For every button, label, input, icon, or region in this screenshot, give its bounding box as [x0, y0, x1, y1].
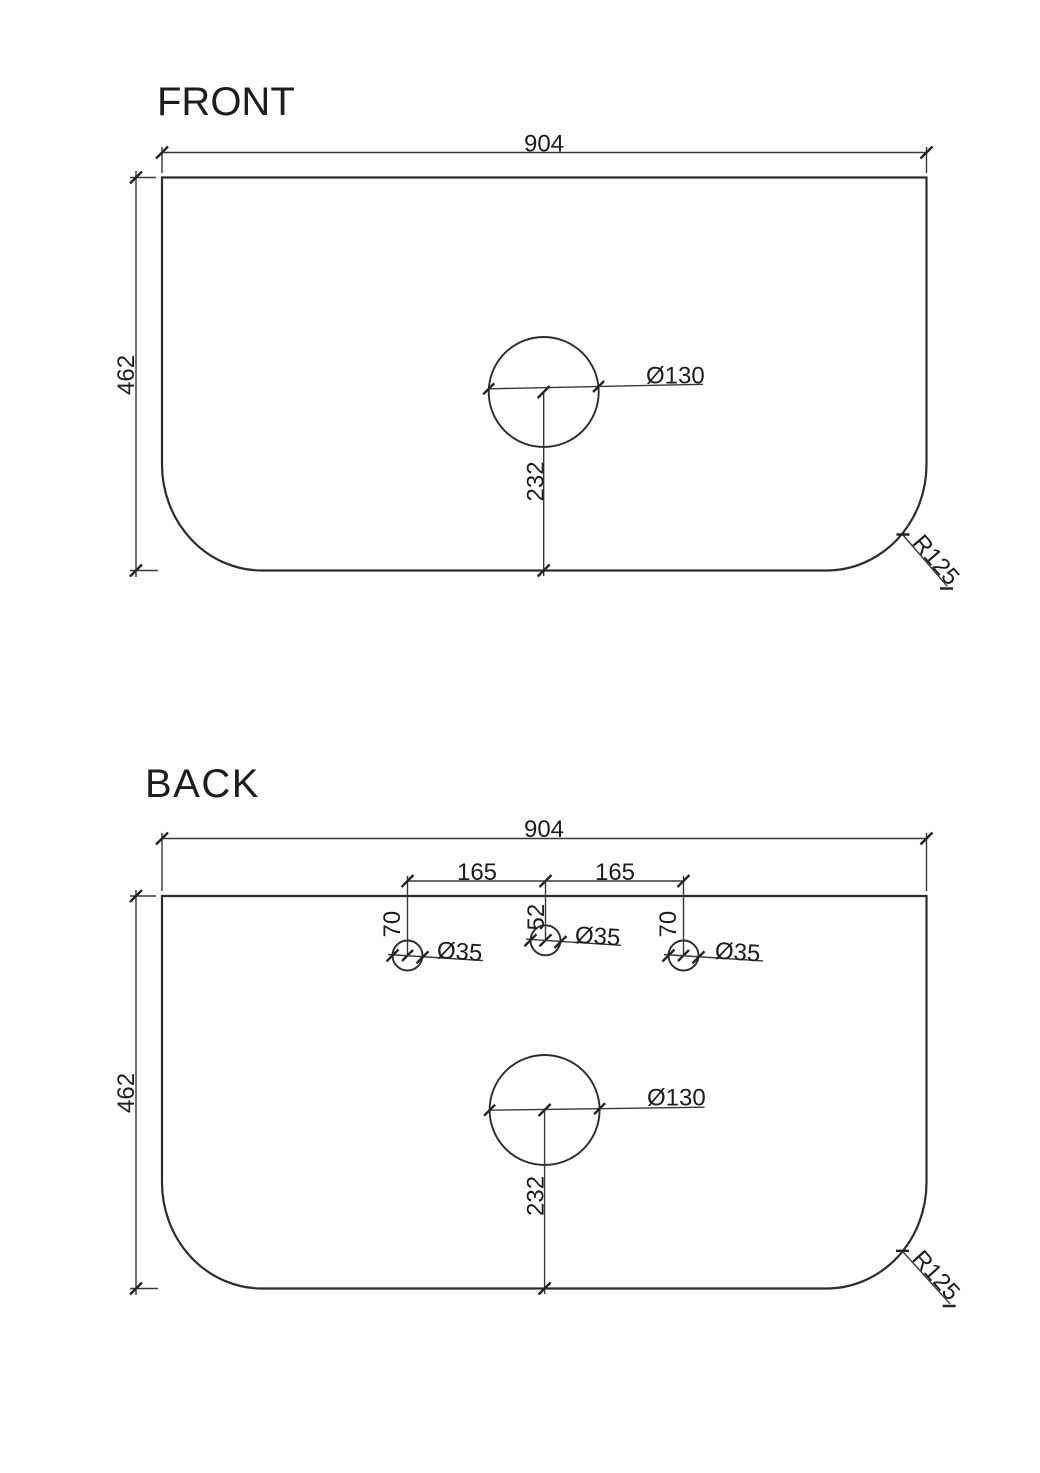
- svg-text:Ø130: Ø130: [647, 1084, 706, 1111]
- svg-text:70: 70: [379, 911, 406, 938]
- svg-text:Ø35: Ø35: [436, 937, 483, 967]
- svg-text:Ø35: Ø35: [714, 938, 761, 968]
- svg-text:52: 52: [523, 904, 550, 931]
- svg-text:Ø35: Ø35: [574, 922, 621, 952]
- svg-text:BACK: BACK: [145, 762, 260, 806]
- svg-text:70: 70: [655, 911, 682, 938]
- svg-text:462: 462: [113, 355, 140, 395]
- svg-text:165: 165: [595, 859, 635, 886]
- svg-text:232: 232: [523, 461, 550, 501]
- svg-text:165: 165: [457, 859, 497, 886]
- svg-text:Ø130: Ø130: [646, 363, 705, 390]
- svg-text:904: 904: [524, 130, 564, 157]
- svg-text:904: 904: [524, 816, 564, 843]
- svg-text:FRONT: FRONT: [157, 80, 295, 124]
- svg-text:462: 462: [113, 1073, 140, 1113]
- svg-text:232: 232: [523, 1176, 550, 1216]
